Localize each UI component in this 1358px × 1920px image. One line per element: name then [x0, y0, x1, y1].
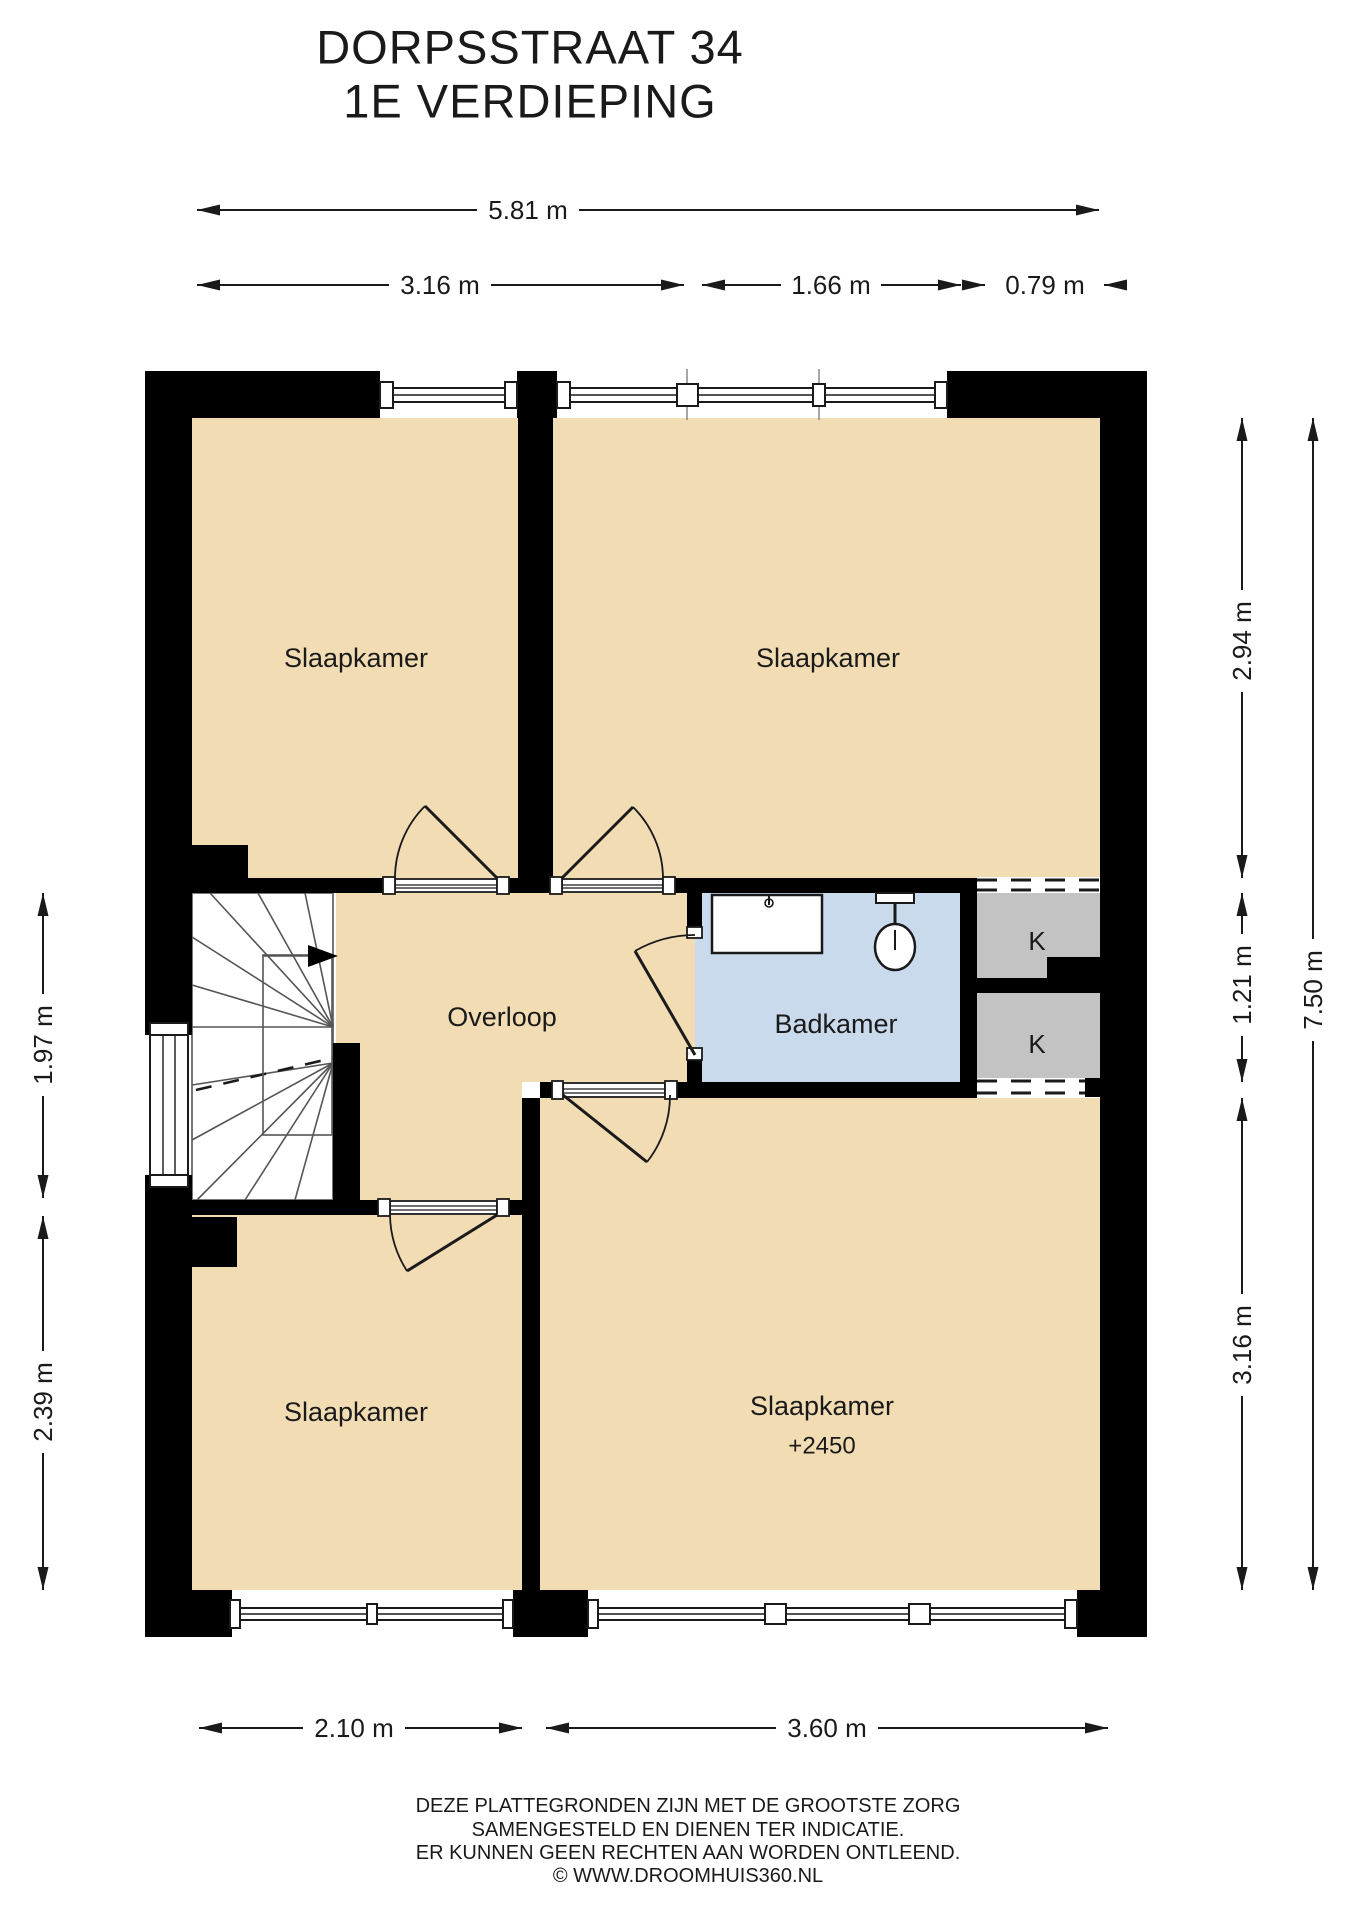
footer-line1: DEZE PLATTEGRONDEN ZIJN MET DE GROOTSTE …: [416, 1795, 961, 1817]
wall-top-pier: [517, 371, 557, 418]
wall-left-upper: [145, 371, 192, 893]
wall-closet-bottom-stub: [1085, 1078, 1100, 1097]
floorplan-page: DORPSSTRAAT 34 1E VERDIEPING Slaapkamer …: [0, 0, 1358, 1920]
window-top: [380, 382, 947, 408]
dim-label-top-right: 0.79 m: [1005, 270, 1085, 300]
wall-left-notch-lower: [145, 1217, 237, 1267]
footer-line2: SAMENGESTELD EN DIENEN TER INDICATIE.: [472, 1819, 905, 1841]
dim-label-right-middle: 1.21 m: [1227, 945, 1257, 1025]
room-label-bedroom-bottom-right: Slaapkamer: [750, 1391, 894, 1421]
wall-left-mid-upper: [145, 893, 192, 1035]
floorplan-drawing: DORPSSTRAAT 34 1E VERDIEPING Slaapkamer …: [0, 0, 1358, 1920]
dim-label-right-top: 2.94 m: [1227, 601, 1257, 681]
dim-label-top-middle: 1.66 m: [791, 270, 871, 300]
wall-left-notch-upper: [145, 845, 248, 893]
wall-bathroom-top: [675, 878, 977, 893]
room-label-bedroom-top-left: Slaapkamer: [284, 643, 428, 673]
wall-bedroom4-top-b: [677, 1082, 977, 1098]
wall-bottom-center: [513, 1590, 588, 1637]
bedroom-bottom-right-floor: [540, 1098, 1100, 1590]
window-left: [150, 1023, 188, 1187]
staircase: [192, 893, 338, 1200]
wall-bedroom4-top-a: [540, 1082, 552, 1098]
wall-bottom-right-corner: [1077, 1590, 1147, 1637]
dim-label-bottom-left: 2.10 m: [314, 1713, 394, 1743]
wall-stairwell-right: [333, 1043, 360, 1200]
wall-bedroom-divider-bottom: [522, 1098, 540, 1590]
wall-bedroom-divider-top: [518, 418, 553, 893]
toilet-tank-icon: [876, 893, 914, 903]
room-label-closet-bottom: K: [1028, 1029, 1046, 1059]
wall-stairwell-bottom: [192, 1200, 378, 1215]
dim-label-top-left: 3.16 m: [400, 270, 480, 300]
room-label-bedroom-top-right: Slaapkamer: [756, 643, 900, 673]
dim-label-left-bottom: 2.39 m: [28, 1362, 58, 1442]
wall-bathroom-left-lower: [687, 1060, 702, 1082]
dim-label-right-bottom: 3.16 m: [1227, 1305, 1257, 1385]
dim-label-top-total: 5.81 m: [488, 195, 568, 225]
wall-landing-top-a: [248, 878, 383, 893]
wall-bottom-left-corner: [145, 1590, 232, 1637]
footer-line3: ER KUNNEN GEEN RECHTEN AAN WORDEN ONTLEE…: [416, 1842, 961, 1864]
room-label-bathroom: Badkamer: [774, 1009, 897, 1039]
wall-closet-step: [1047, 957, 1100, 978]
wall-closet-divider: [965, 978, 1100, 993]
wall-right: [1100, 418, 1147, 1590]
dim-label-bottom-right: 3.60 m: [787, 1713, 867, 1743]
wall-bathroom-right: [960, 893, 977, 1098]
wall-top-right-corner: [947, 371, 1147, 418]
wall-left-lower: [145, 1267, 192, 1590]
room-label-landing: Overloop: [447, 1002, 557, 1032]
dim-label-left-top: 1.97 m: [28, 1005, 58, 1085]
window-bottom: [230, 1600, 1077, 1628]
room-label-closet-top: K: [1028, 926, 1046, 956]
dim-label-right-total: 7.50 m: [1298, 950, 1328, 1030]
page-title-line1: DORPSSTRAAT 34: [316, 21, 744, 74]
footer-line4: © WWW.DROOMHUIS360.NL: [553, 1865, 823, 1887]
sink-icon: [712, 895, 822, 953]
wall-bathroom-left-upper: [687, 893, 702, 927]
room-label-bedroom-bottom-left: Slaapkamer: [284, 1397, 428, 1427]
page-title-line2: 1E VERDIEPING: [343, 75, 716, 128]
room-level-bedroom-bottom-right: +2450: [788, 1433, 855, 1460]
